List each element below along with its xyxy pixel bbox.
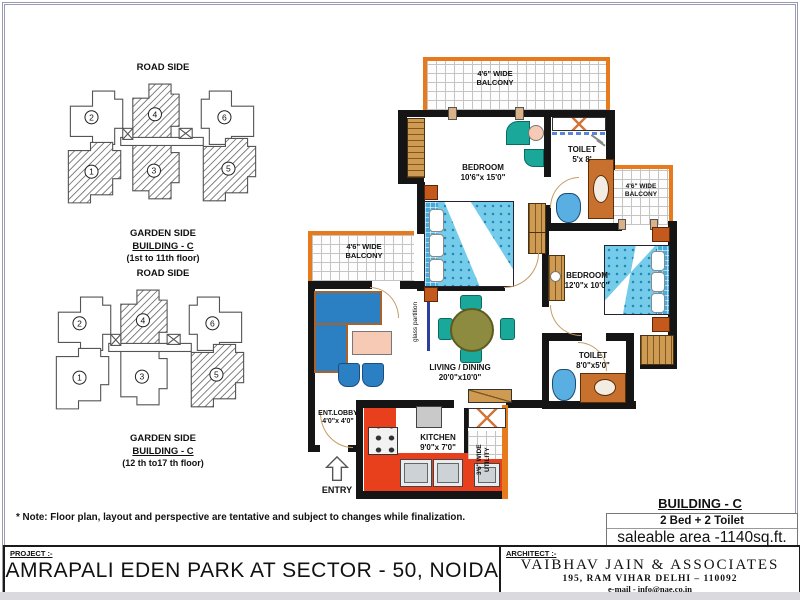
bedside-table <box>424 287 438 302</box>
bedside-table <box>424 185 438 200</box>
dining-table <box>450 308 494 352</box>
shower-area <box>552 117 606 131</box>
pillow <box>429 234 444 257</box>
living-dining-label: LIVING / DINING20'0"x10'0" <box>400 363 520 382</box>
dining-chair <box>500 318 515 340</box>
tv-unit <box>528 232 546 254</box>
building-info-box: 2 Bed + 2 Toilet saleable area -1140sq.f… <box>606 513 798 548</box>
keyplan2-floors-label: (12 th to17 th floor) <box>58 458 268 468</box>
shower-screen <box>552 132 606 135</box>
crockery-shelf <box>468 389 512 403</box>
washbasin <box>593 175 609 203</box>
glass-partition-label: glass partition <box>412 293 424 351</box>
svg-text:4: 4 <box>153 109 158 119</box>
bedroom1-label: BEDROOM10'6"x 15'0" <box>440 163 526 182</box>
round-side-table <box>528 125 544 141</box>
balcony-top: 4'6" WIDEBALCONY <box>423 57 610 110</box>
bedroom2-label: BEDROOM12'0"x 10'0" <box>548 271 626 290</box>
keyplan-1st-11th: 2 4 6 1 3 5 <box>56 76 268 222</box>
svg-text:6: 6 <box>210 318 215 328</box>
bedside-table <box>652 317 670 332</box>
title-bar: PROJECT :- AMRAPALI EDEN PARK AT SECTOR … <box>3 545 800 594</box>
pillow <box>651 272 665 292</box>
gas-stove <box>368 427 398 455</box>
wall <box>606 333 626 341</box>
wall <box>542 341 549 407</box>
svg-text:2: 2 <box>89 112 94 122</box>
floor-plan-sheet: ROAD SIDE 2 4 6 1 3 5 <box>0 0 800 600</box>
keyplan2-garden-side-label: GARDEN SIDE <box>58 433 268 444</box>
corner-chair <box>524 149 544 167</box>
wardrobe <box>407 118 425 178</box>
keyplan1-garden-side-label: GARDEN SIDE <box>58 228 268 239</box>
disclaimer-note: * Note: Floor plan, layout and perspecti… <box>16 512 486 523</box>
architect-name: VAIBHAV JAIN & ASSOCIATES <box>501 557 799 574</box>
keyplan1-building-label: BUILDING - C <box>58 241 268 252</box>
toilet1-label: TOILET5'x 8' <box>550 145 614 164</box>
drainboard <box>433 459 463 487</box>
pillow <box>651 293 665 313</box>
door-swing <box>504 253 539 288</box>
kitchen-sink <box>400 459 432 487</box>
armchair <box>338 363 360 387</box>
building-info-title: BUILDING - C <box>640 496 760 511</box>
svg-text:3: 3 <box>140 372 145 382</box>
architect-cell: ARCHITECT :- VAIBHAV JAIN & ASSOCIATES 1… <box>499 547 799 592</box>
door-swing <box>550 177 579 208</box>
door-swing <box>370 287 399 318</box>
toilet2-label: TOILET8'0"x5'0" <box>556 351 630 370</box>
project-label: PROJECT :- <box>10 549 53 558</box>
keyplan2-road-side-label: ROAD SIDE <box>58 268 268 279</box>
wall <box>308 445 320 452</box>
coffee-table <box>352 331 392 355</box>
svg-text:4: 4 <box>141 315 146 325</box>
washbasin-counter <box>580 373 626 403</box>
pillow <box>429 209 444 232</box>
sheet-edge <box>0 592 800 600</box>
entry-label: ENTRY <box>308 485 366 496</box>
building-config: 2 Bed + 2 Toilet <box>607 514 797 529</box>
pillow <box>651 251 665 271</box>
corner-chair <box>506 121 530 145</box>
svg-text:2: 2 <box>77 318 82 328</box>
keyplan-12th-17th: 2 4 6 1 3 5 <box>44 282 256 428</box>
utility-label: 3'6" WIDEUTILITY <box>476 431 500 489</box>
service-shaft <box>468 408 506 428</box>
wall <box>626 333 634 409</box>
wc-toilet <box>552 369 576 401</box>
keyplan2-building-label: BUILDING - C <box>58 446 268 457</box>
project-cell: PROJECT :- AMRAPALI EDEN PARK AT SECTOR … <box>5 547 499 592</box>
balcony-left-label: 4'6" WIDEBALCONY <box>324 242 404 260</box>
wall <box>398 110 407 180</box>
washbasin <box>594 379 616 396</box>
entry-lobby-label: ENT.LOBBY4'0"x 4'0" <box>314 410 362 427</box>
wall <box>506 400 548 408</box>
architect-address: 195, RAM VIHAR DELHI – 110092 <box>501 574 799 584</box>
dresser-unit <box>640 335 674 365</box>
project-name: AMRAPALI EDEN PARK AT SECTOR - 50, NOIDA <box>5 559 499 583</box>
keyplan1-floors-label: (1st to 11th floor) <box>58 253 268 263</box>
svg-text:1: 1 <box>77 373 82 383</box>
washbasin-counter <box>588 159 614 219</box>
svg-text:6: 6 <box>222 112 227 122</box>
pillow <box>429 259 444 282</box>
door-jamb <box>448 107 457 120</box>
main-floor-plan: 4'6" WIDEBALCONY 4'6" WIDEBALCONY 4'6" W… <box>300 55 682 503</box>
svg-text:5: 5 <box>214 370 219 380</box>
svg-text:3: 3 <box>152 166 157 176</box>
armchair <box>362 363 384 387</box>
fridge <box>416 406 442 428</box>
wall <box>544 110 551 177</box>
balcony-left: 4'6" WIDEBALCONY <box>308 231 414 281</box>
door-jamb <box>618 219 626 230</box>
balcony-right: 4'6" WIDEBALCONY <box>613 165 673 225</box>
svg-text:1: 1 <box>89 167 94 177</box>
balcony-top-label: 4'6" WIDEBALCONY <box>455 69 535 87</box>
wall <box>398 110 615 117</box>
bedside-table <box>652 227 670 242</box>
entry-arrow-icon <box>324 455 350 483</box>
wall <box>308 281 372 289</box>
balcony-right-label: 4'6" WIDEBALCONY <box>615 183 667 199</box>
keyplan1-road-side-label: ROAD SIDE <box>58 62 268 73</box>
door-jamb <box>515 107 524 120</box>
door-swing <box>550 305 581 336</box>
wall <box>356 491 508 499</box>
svg-text:5: 5 <box>226 164 231 174</box>
kitchen-label: KITCHEN9'0"x 7'0" <box>400 433 476 452</box>
wall <box>544 223 622 231</box>
double-bed <box>424 201 514 287</box>
